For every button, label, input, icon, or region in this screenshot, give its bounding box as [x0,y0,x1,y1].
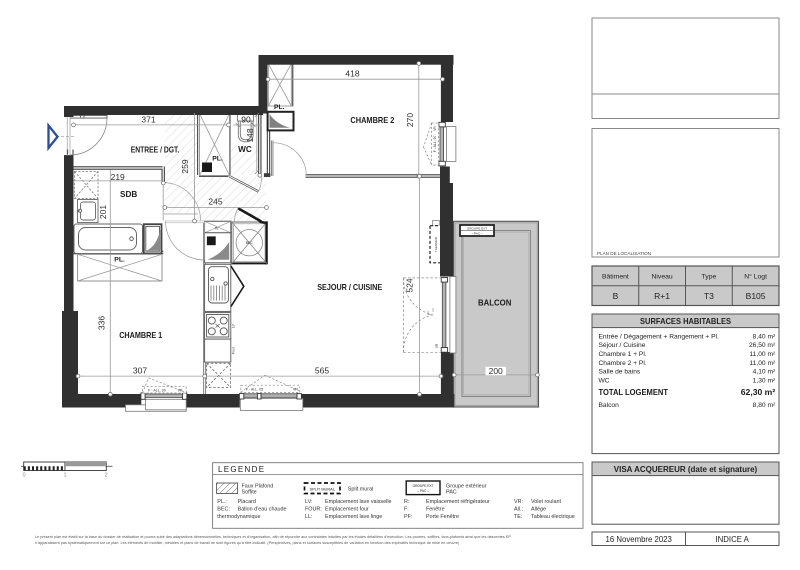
svg-text:1,30 m²: 1,30 m² [753,378,776,385]
svg-text:PF:: PF: [404,514,412,520]
svg-text:SEJOUR / CUISINE: SEJOUR / CUISINE [317,282,382,292]
svg-text:4,10 m²: 4,10 m² [753,369,776,376]
svg-text:THERMOR: THERMOR [434,236,438,252]
svg-text:148: 148 [245,128,255,142]
svg-text:INDICE A: INDICE A [716,535,750,544]
svg-text:Placard: Placard [238,499,256,505]
svg-text:Soffite: Soffite [242,489,257,495]
svg-text:VR: VR [433,126,437,131]
svg-text:VR: VR [293,387,298,391]
svg-text:Tableau électrique: Tableau électrique [531,514,575,520]
svg-text:270: 270 [405,113,415,127]
svg-text:90: 90 [241,115,251,125]
svg-text:– PAC –: – PAC – [417,489,429,493]
svg-text:F:: F: [404,507,409,513]
svg-text:26,50 m²: 26,50 m² [749,342,776,349]
svg-text:Emplacement lave linge: Emplacement lave linge [325,514,382,520]
svg-text:524: 524 [404,278,414,292]
svg-text:336: 336 [97,316,107,330]
svg-text:8,80 m²: 8,80 m² [753,402,776,409]
svg-text:LL:: LL: [305,514,313,520]
svg-text:R:: R: [404,499,409,505]
svg-text:565: 565 [315,365,329,375]
svg-text:Emplacement lave vaisselle: Emplacement lave vaisselle [325,499,392,505]
svg-text:LV:: LV: [305,499,313,505]
svg-text:16 Novembre 2023: 16 Novembre 2023 [606,535,672,544]
svg-text:VR: VR [435,343,439,348]
svg-text:SDB: SDB [120,190,137,199]
svg-text:Chambre 1 + Pl.: Chambre 1 + Pl. [599,351,647,358]
svg-text:thermodynamique: thermodynamique [217,514,260,520]
svg-text:PL.: PL. [274,104,285,111]
svg-text:PAC: PAC [446,490,457,496]
svg-text:201: 201 [98,205,108,219]
svg-text:62,30 m²: 62,30 m² [741,387,776,397]
svg-text:TE:: TE: [514,514,522,520]
svg-text:1: 1 [64,473,67,479]
svg-text:PLAN DE LOCALISATION: PLAN DE LOCALISATION [597,251,651,256]
svg-text:CHAMBRE 1: CHAMBRE 1 [119,330,162,340]
svg-text:F - ALL. 90: F - ALL. 90 [433,136,437,153]
svg-text:Porte Fenêtre: Porte Fenêtre [426,514,459,520]
svg-text:N° Logt: N° Logt [744,273,767,281]
svg-text:WC: WC [238,145,252,154]
svg-text:245: 245 [208,197,222,207]
svg-text:n’apparaissent pas systématiqu: n’apparaissent pas systématiquement sur … [35,541,460,545]
svg-text:FOUR:: FOUR: [305,507,322,513]
svg-text:LEGENDE: LEGENDE [218,465,265,474]
svg-text:Type: Type [702,274,717,281]
svg-text:WC: WC [599,378,610,385]
svg-text:VR:: VR: [514,499,523,505]
svg-text:8,40 m²: 8,40 m² [753,333,776,340]
svg-text:BEC: BEC [246,241,254,245]
svg-text:VR: VR [178,389,183,393]
svg-text:GROUPE EXT: GROUPE EXT [413,484,434,488]
svg-text:T3: T3 [704,291,714,301]
svg-text:Four: Four [232,346,236,354]
svg-text:0: 0 [23,473,26,479]
svg-text:Fenêtre: Fenêtre [426,507,445,513]
svg-text:PL.:: PL.: [217,499,227,505]
svg-text:418: 418 [345,68,359,78]
svg-text:11,00 m²: 11,00 m² [749,360,776,367]
svg-text:Bâtiment: Bâtiment [602,274,629,281]
svg-text:TE: TE [214,227,218,231]
svg-text:PL.: PL. [114,257,125,264]
svg-text:All.:: All.: [514,507,523,513]
svg-text:219: 219 [111,172,125,182]
svg-text:B: B [613,291,619,301]
svg-text:Split mural: Split mural [348,487,373,493]
svg-text:Balcon: Balcon [599,402,620,409]
svg-text:TOTAL LOGEMENT: TOTAL LOGEMENT [599,387,669,397]
svg-text:ENTREE / DGT.: ENTREE / DGT. [131,146,180,155]
svg-text:Niveau: Niveau [652,274,673,281]
svg-text:BALCON: BALCON [478,298,512,307]
svg-text:200: 200 [489,366,503,376]
svg-text:B105: B105 [746,291,766,301]
svg-text:SURFACES HABITABLES: SURFACES HABITABLES [640,316,731,326]
svg-text:PL.: PL. [212,155,223,162]
svg-text:Emplacement four: Emplacement four [325,507,369,513]
svg-text:Ballon d’eau chaude: Ballon d’eau chaude [238,507,287,513]
svg-text:VISA ACQUEREUR (date et signat: VISA ACQUEREUR (date et signature) [614,465,758,474]
svg-text:Entrée / Dégagement + Rangemen: Entrée / Dégagement + Rangement + Pl. [599,333,719,340]
svg-text:Salle de bains: Salle de bains [599,369,641,376]
svg-text:F - ALL. 90: F - ALL. 90 [148,389,166,393]
svg-text:259: 259 [180,159,190,173]
svg-text:Chambre 2 + Pl.: Chambre 2 + Pl. [599,360,647,367]
svg-text:Volet roulant: Volet roulant [531,499,561,505]
svg-text:Groupe extérieur: Groupe extérieur [446,483,487,489]
svg-text:Emplacement réfrigérateur: Emplacement réfrigérateur [426,499,490,505]
svg-text:SPLIT MURAL: SPLIT MURAL [309,486,335,491]
svg-text:CHAMBRE 2: CHAMBRE 2 [350,115,394,125]
svg-text:BEC:: BEC: [217,507,230,513]
svg-text:Allège: Allège [531,507,546,513]
svg-text:GROUPE EXT: GROUPE EXT [467,227,487,231]
svg-text:Le présent plan est établi sur: Le présent plan est établi sur la base d… [35,535,511,539]
svg-text:2: 2 [105,473,108,479]
svg-text:F - ALL. 05: F - ALL. 05 [246,387,264,391]
svg-text:Séjour / Cuisine: Séjour / Cuisine [599,342,646,349]
svg-text:– PAC –: – PAC – [471,232,483,236]
svg-text:11,00 m²: 11,00 m² [749,351,776,358]
svg-text:371: 371 [141,115,155,125]
svg-text:307: 307 [133,366,147,376]
svg-text:R+1: R+1 [654,291,670,301]
